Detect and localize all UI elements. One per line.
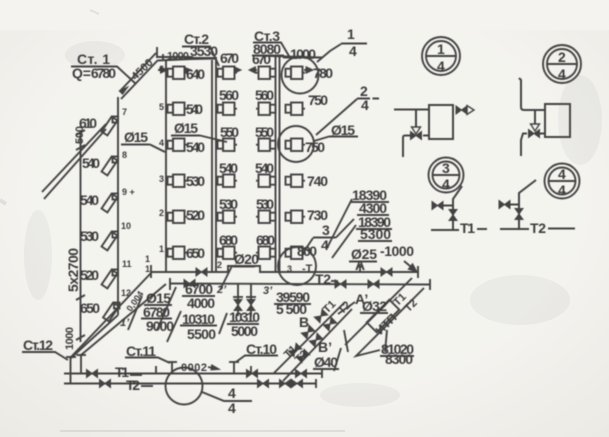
svg-text:540: 540 (219, 160, 238, 176)
svg-text:Т1: Т1 (460, 220, 475, 236)
svg-text:4: 4 (321, 237, 329, 253)
svg-text:Т2: Т2 (530, 220, 546, 236)
svg-text:540: 540 (255, 160, 274, 176)
svg-text:560: 560 (255, 87, 274, 103)
svg-text:3: 3 (322, 222, 330, 238)
svg-text:6: 6 (159, 64, 164, 74)
svg-text:8300: 8300 (385, 351, 413, 367)
svg-text:540: 540 (186, 101, 203, 117)
svg-text:680: 680 (219, 232, 238, 248)
svg-text:640: 640 (186, 66, 205, 82)
svg-text:740: 740 (307, 173, 328, 189)
svg-text:2: 2 (159, 208, 164, 218)
svg-text:650: 650 (186, 245, 205, 261)
svg-text:4: 4 (361, 97, 369, 113)
svg-text:540: 540 (80, 192, 99, 208)
svg-text:4: 4 (558, 182, 566, 198)
svg-text:9000: 9000 (146, 318, 174, 334)
svg-text:520: 520 (80, 267, 99, 283)
svg-text:650: 650 (80, 300, 100, 316)
svg-text:730: 730 (307, 207, 328, 223)
svg-text:Ø15: Ø15 (174, 120, 198, 136)
svg-text:5500: 5500 (187, 326, 216, 342)
svg-text:3: 3 (287, 264, 292, 274)
svg-text:1: 1 (145, 254, 150, 264)
svg-text:Ø15: Ø15 (331, 122, 355, 138)
svg-text:2: 2 (217, 260, 222, 270)
svg-text:550: 550 (255, 124, 274, 140)
svg-text:5000: 5000 (231, 323, 258, 339)
svg-text:Ø15: Ø15 (124, 129, 148, 145)
svg-text:4: 4 (228, 385, 236, 401)
svg-text:8: 8 (122, 150, 127, 160)
svg-text:10: 10 (121, 221, 131, 231)
svg-text:4: 4 (442, 176, 450, 192)
svg-text:540: 540 (82, 155, 100, 171)
svg-text:9 +: 9 + (122, 187, 135, 197)
svg-text:В’: В’ (318, 339, 332, 355)
svg-text:Т2: Т2 (315, 271, 331, 287)
svg-text:550: 550 (220, 124, 239, 140)
svg-text:0002: 0002 (181, 362, 207, 374)
svg-text:680: 680 (256, 232, 275, 248)
svg-text:4: 4 (558, 166, 566, 182)
svg-text:4000: 4000 (187, 295, 215, 311)
svg-text:4: 4 (558, 66, 566, 82)
svg-text:530: 530 (186, 173, 205, 189)
svg-text:Ø32: Ø32 (362, 298, 387, 314)
svg-text:1000: 1000 (64, 327, 76, 350)
svg-text:540: 540 (186, 139, 205, 155)
svg-text:12: 12 (121, 288, 131, 298)
svg-text:7: 7 (122, 107, 127, 117)
svg-text:530: 530 (256, 196, 274, 212)
svg-text:1000: 1000 (290, 46, 316, 62)
svg-text:3’: 3’ (263, 285, 273, 297)
svg-text:5x2700: 5x2700 (65, 248, 81, 292)
svg-text:560: 560 (219, 87, 239, 103)
svg-text:750: 750 (308, 92, 328, 108)
svg-text:530: 530 (219, 196, 238, 212)
svg-text:3: 3 (159, 174, 164, 184)
svg-text:4: 4 (437, 58, 445, 74)
svg-text:Ст.12: Ст.12 (23, 337, 53, 353)
svg-text:-Т: -Т (302, 263, 313, 275)
svg-text:Ø20: Ø20 (234, 251, 259, 267)
svg-text:520: 520 (186, 207, 205, 223)
svg-text:5: 5 (159, 102, 164, 112)
svg-text:1: 1 (159, 244, 164, 254)
svg-text:-1000: -1000 (380, 243, 414, 259)
svg-text:4: 4 (228, 400, 236, 416)
svg-text:11: 11 (122, 259, 132, 269)
svg-text:4: 4 (159, 138, 164, 148)
svg-text:1: 1 (437, 41, 445, 57)
svg-text:2: 2 (558, 49, 566, 65)
svg-text:500: 500 (74, 126, 86, 144)
svg-text:1: 1 (347, 26, 355, 42)
svg-text:1: 1 (145, 264, 150, 274)
svg-text:Т2: Т2 (126, 377, 140, 393)
svg-text:530: 530 (80, 228, 99, 244)
svg-text:4: 4 (349, 43, 357, 59)
svg-text:670: 670 (220, 50, 239, 66)
svg-text:3: 3 (442, 160, 450, 176)
